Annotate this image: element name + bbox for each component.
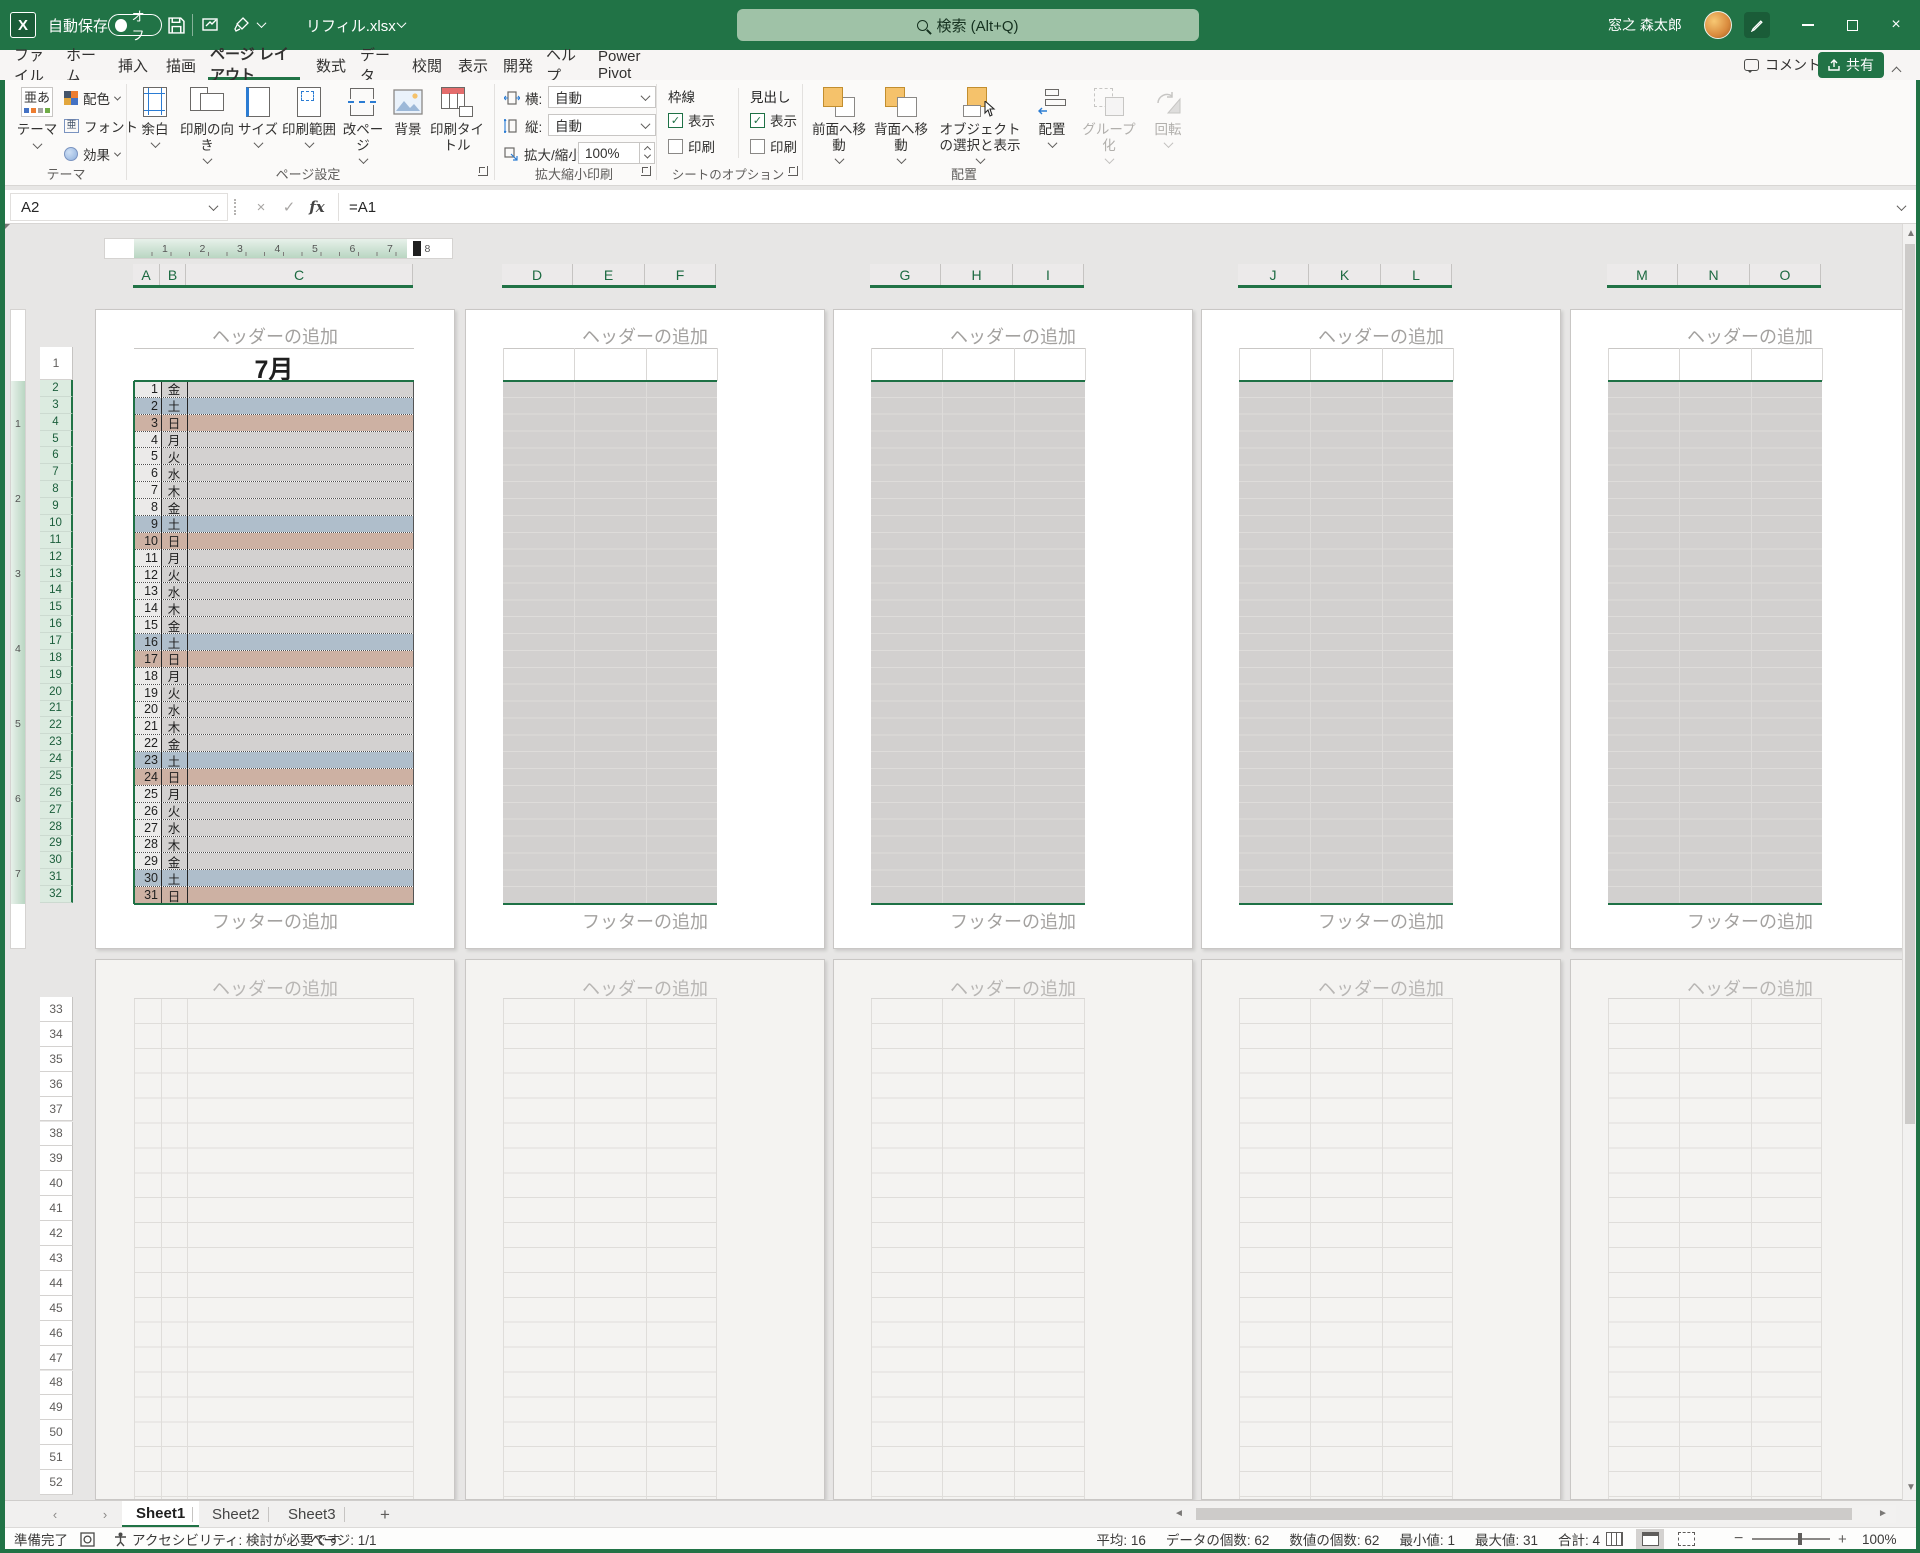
selection-border-bottom bbox=[871, 903, 1085, 905]
share-icon bbox=[1828, 59, 1840, 71]
accessibility-icon bbox=[114, 1528, 127, 1550]
day-content-cell[interactable] bbox=[187, 482, 414, 498]
enter-check-icon[interactable]: ✓ bbox=[276, 193, 302, 221]
header-placeholder[interactable]: ヘッダーの追加 bbox=[1202, 323, 1560, 349]
horizontal-scroll-thumb[interactable] bbox=[1196, 1508, 1852, 1520]
row-header-3[interactable]: 3 bbox=[40, 397, 73, 414]
day-content-cell[interactable] bbox=[187, 398, 414, 414]
day-number-cell: 15 bbox=[134, 617, 161, 633]
day-content-cell[interactable] bbox=[187, 634, 414, 650]
menu-tab-開発[interactable]: 開発 bbox=[500, 50, 536, 80]
day-content-cell[interactable] bbox=[187, 415, 414, 431]
file-name[interactable]: リフィル.xlsx bbox=[306, 0, 396, 50]
page-setup-group-label: ページ設定 bbox=[128, 164, 488, 183]
day-of-week-cell: 土 bbox=[161, 752, 187, 768]
scale-percent-input[interactable]: 100% bbox=[578, 142, 640, 164]
menu-tab-ホーム[interactable]: ホーム bbox=[64, 50, 104, 80]
row-header-28[interactable]: 28 bbox=[40, 819, 73, 836]
page-setup-breaks-button[interactable]: 改ページ bbox=[338, 84, 388, 164]
day-number-cell: 17 bbox=[134, 651, 161, 667]
day-number-cell: 12 bbox=[134, 567, 161, 583]
day-content-cell[interactable] bbox=[187, 567, 414, 583]
content-top-line bbox=[871, 348, 1085, 349]
dropdown-chevron-icon bbox=[358, 154, 368, 164]
dropdown-chevron-icon bbox=[1163, 138, 1173, 148]
day-content-cell[interactable] bbox=[187, 550, 414, 566]
day-of-week-cell: 火 bbox=[161, 685, 187, 701]
insert-function-icon[interactable]: fx bbox=[304, 193, 330, 221]
row-header-38[interactable]: 38 bbox=[40, 1122, 73, 1147]
header-placeholder[interactable]: ヘッダーの追加 bbox=[96, 323, 454, 349]
window-icon[interactable] bbox=[200, 14, 222, 36]
scroll-right-icon[interactable]: ► bbox=[1878, 1508, 1888, 1519]
fonts-icon: 亜 bbox=[64, 119, 79, 133]
row-header-50[interactable]: 50 bbox=[40, 1420, 73, 1445]
row-header-4[interactable]: 4 bbox=[40, 414, 73, 431]
row-header-6[interactable]: 6 bbox=[40, 447, 73, 464]
day-of-week-cell: 土 bbox=[161, 516, 187, 532]
page-setup-orientation-button[interactable]: 印刷の向き bbox=[180, 84, 234, 164]
day-content-cell[interactable] bbox=[187, 381, 414, 397]
theme-effects-button[interactable]: 効果 bbox=[64, 144, 120, 164]
ribbon-collapse-icon[interactable] bbox=[1893, 62, 1900, 78]
row-header-7[interactable]: 7 bbox=[40, 464, 73, 481]
row-header-2[interactable]: 2 bbox=[40, 380, 73, 397]
dropdown-chevron-icon bbox=[150, 138, 160, 148]
day-number-cell: 13 bbox=[134, 583, 161, 599]
day-content-cell[interactable] bbox=[187, 735, 414, 751]
gridline-vertical bbox=[187, 999, 188, 1500]
column-header-H[interactable]: H bbox=[941, 264, 1013, 286]
day-content-cell[interactable] bbox=[187, 853, 414, 869]
row-header-11[interactable]: 11 bbox=[40, 532, 73, 549]
column-header-O[interactable]: O bbox=[1750, 264, 1821, 286]
day-content-cell[interactable] bbox=[187, 448, 414, 464]
ready-status: 準備完了 bbox=[14, 1528, 68, 1550]
column-border-ab bbox=[161, 381, 162, 904]
stat-item: 数値の個数: 62 bbox=[1289, 1529, 1379, 1549]
page-break-view-icon[interactable] bbox=[1672, 1529, 1700, 1549]
pen-icon[interactable] bbox=[1744, 12, 1770, 38]
status-bar: 準備完了 アクセシビリティ: 検討が必要です ページ: 1/1 平均: 16デー… bbox=[0, 1527, 1920, 1549]
save-icon[interactable] bbox=[165, 14, 187, 36]
row-header-12[interactable]: 12 bbox=[40, 549, 73, 566]
maximize-button[interactable] bbox=[1832, 0, 1872, 50]
footer-placeholder[interactable]: フッターの追加 bbox=[96, 908, 454, 934]
page-setup-button-label: 余白 bbox=[132, 122, 178, 138]
day-content-cell[interactable] bbox=[187, 887, 414, 903]
user-name: 窓之 森太郎 bbox=[1608, 0, 1682, 50]
row-header-48[interactable]: 48 bbox=[40, 1371, 73, 1396]
row-header-22[interactable]: 22 bbox=[40, 717, 73, 734]
row-header-16[interactable]: 16 bbox=[40, 616, 73, 633]
horizontal-scrollbar[interactable]: ◄ ► bbox=[1170, 1505, 1896, 1523]
day-content-cell[interactable] bbox=[187, 820, 414, 836]
row-header-41[interactable]: 41 bbox=[40, 1196, 73, 1221]
vertical-scrollbar[interactable]: ▲▼ bbox=[1902, 224, 1916, 1500]
gridline-vertical bbox=[646, 381, 647, 904]
sheet-tab-separator bbox=[192, 1507, 193, 1522]
row-header-8[interactable]: 8 bbox=[40, 481, 73, 498]
column-border-bc bbox=[187, 381, 188, 904]
normal-view-icon[interactable] bbox=[1600, 1529, 1628, 1549]
page-setup-button-label: サイズ bbox=[236, 122, 280, 138]
menu-tab-ページ レイアウト[interactable]: ページ レイアウト bbox=[208, 50, 300, 80]
row-header-35[interactable]: 35 bbox=[40, 1047, 73, 1072]
day-content-cell[interactable] bbox=[187, 533, 414, 549]
scroll-down-icon[interactable]: ▼ bbox=[1906, 1482, 1916, 1493]
selection-stats: 平均: 16データの個数: 62数値の個数: 62最小値: 1最大値: 31合計… bbox=[1096, 1528, 1600, 1550]
themes-label: テーマ bbox=[17, 122, 58, 138]
brush-icon[interactable] bbox=[230, 14, 252, 36]
header-placeholder[interactable]: ヘッダーの追加 bbox=[466, 323, 824, 349]
qat-customize-chevron-icon[interactable] bbox=[258, 21, 265, 28]
day-content-cell[interactable] bbox=[187, 685, 414, 701]
sheet-nav-left-icon[interactable]: ‹ bbox=[42, 1501, 68, 1528]
column-header-J[interactable]: J bbox=[1238, 264, 1309, 286]
row-header-34[interactable]: 34 bbox=[40, 1022, 73, 1047]
row-header-20[interactable]: 20 bbox=[40, 684, 73, 701]
day-content-cell[interactable] bbox=[187, 432, 414, 448]
column-header-M[interactable]: M bbox=[1607, 264, 1678, 286]
page-setup-print-area-button[interactable]: 印刷範囲 bbox=[282, 84, 336, 148]
day-content-cell[interactable] bbox=[187, 668, 414, 684]
stat-item: データの個数: 62 bbox=[1166, 1529, 1270, 1549]
row-header-17[interactable]: 17 bbox=[40, 633, 73, 650]
row-header-1[interactable]: 1 bbox=[40, 347, 73, 380]
gridlines-print-checkbox[interactable]: 印刷 bbox=[668, 136, 715, 156]
selection-border-bottom bbox=[503, 903, 717, 905]
column-border-right bbox=[413, 381, 414, 904]
day-content-cell[interactable] bbox=[187, 600, 414, 616]
row-header-45[interactable]: 45 bbox=[40, 1296, 73, 1321]
print-area-icon bbox=[297, 84, 321, 120]
sheet-tab-Sheet3[interactable]: Sheet3 bbox=[274, 1501, 350, 1528]
cancel-icon[interactable]: × bbox=[248, 193, 274, 221]
formula-bar: A2 × ✓ fx =A1 bbox=[0, 190, 1920, 224]
row-header-26[interactable]: 26 bbox=[40, 785, 73, 802]
autosave-toggle[interactable]: オフ bbox=[108, 14, 162, 36]
row-header-14[interactable]: 14 bbox=[40, 582, 73, 599]
calendar-row-31[interactable]: 31日 bbox=[134, 887, 414, 904]
footer-placeholder[interactable]: フッターの追加 bbox=[466, 908, 824, 934]
day-content-cell[interactable] bbox=[187, 769, 414, 785]
page-setup-background-button[interactable]: 背景 bbox=[390, 84, 426, 138]
day-content-cell[interactable] bbox=[187, 803, 414, 819]
share-button[interactable]: 共有 bbox=[1818, 52, 1884, 78]
scale-width-row: 横: bbox=[504, 88, 542, 108]
effects-icon bbox=[64, 147, 78, 161]
print-titles-icon bbox=[441, 84, 473, 120]
row-header-25[interactable]: 25 bbox=[40, 768, 73, 785]
dropdown-chevron-icon bbox=[975, 154, 985, 164]
footer-placeholder[interactable]: フッターの追加 bbox=[1571, 908, 1920, 934]
column-header-D[interactable]: D bbox=[502, 264, 573, 286]
page-layout-view-icon[interactable] bbox=[1636, 1529, 1664, 1549]
day-number-cell: 30 bbox=[134, 870, 161, 886]
selection-pane-icon bbox=[963, 84, 997, 120]
row-header-36[interactable]: 36 bbox=[40, 1072, 73, 1097]
column-header-N[interactable]: N bbox=[1678, 264, 1750, 286]
day-content-cell[interactable] bbox=[187, 583, 414, 599]
gridline-vertical bbox=[942, 999, 943, 1500]
day-of-week-cell: 金 bbox=[161, 499, 187, 515]
search-placeholder: 検索 (Alt+Q) bbox=[936, 15, 1018, 36]
align-button[interactable]: 配置 bbox=[1030, 84, 1074, 148]
day-number-cell: 29 bbox=[134, 853, 161, 869]
vruler-number: 6 bbox=[15, 793, 21, 805]
row-header-39[interactable]: 39 bbox=[40, 1146, 73, 1171]
bring-forward-button[interactable]: 前面へ移動 bbox=[810, 84, 868, 164]
scroll-left-icon[interactable]: ◄ bbox=[1174, 1508, 1184, 1519]
day-of-week-cell: 日 bbox=[161, 887, 187, 903]
gridline-vertical bbox=[1821, 999, 1822, 1500]
send-backward-icon bbox=[885, 84, 917, 120]
day-number-cell: 5 bbox=[134, 448, 161, 464]
day-content-cell[interactable] bbox=[187, 786, 414, 802]
group-icon bbox=[1094, 84, 1124, 120]
scroll-up-icon[interactable]: ▲ bbox=[1906, 228, 1916, 239]
page-5: ヘッダーの追加フッターの追加 bbox=[1570, 309, 1920, 949]
menu-tab-ヘルプ[interactable]: ヘルプ bbox=[544, 50, 584, 80]
excel-window: X 自動保存 オフ リフィル.xlsx 検索 (Alt+Q) 窓之 森太郎 × bbox=[0, 0, 1920, 1553]
add-sheet-button[interactable]: + bbox=[372, 1501, 398, 1528]
send-backward-button[interactable]: 背面へ移動 bbox=[872, 84, 930, 164]
column-header-G[interactable]: G bbox=[870, 264, 941, 286]
row-header-37[interactable]: 37 bbox=[40, 1097, 73, 1122]
avatar[interactable] bbox=[1704, 11, 1732, 39]
vruler-number: 4 bbox=[15, 643, 21, 655]
day-content-cell[interactable] bbox=[187, 617, 414, 633]
scale-height-select[interactable]: 自動 bbox=[548, 114, 656, 136]
column-header-B[interactable]: B bbox=[160, 264, 186, 286]
day-of-week-cell: 土 bbox=[161, 870, 187, 886]
page-setup-size-button[interactable]: サイズ bbox=[236, 84, 280, 148]
row-header-15[interactable]: 15 bbox=[40, 599, 73, 616]
selection-border-left bbox=[133, 381, 135, 904]
dropdown-chevron-icon bbox=[202, 154, 212, 164]
page-setup-print-titles-button[interactable]: 印刷タイトル bbox=[428, 84, 486, 154]
scale-icon bbox=[504, 147, 519, 161]
column-header-A[interactable]: A bbox=[133, 264, 160, 286]
menu-tab-ファイル[interactable]: ファイル bbox=[12, 50, 56, 80]
gridline-vertical bbox=[1310, 999, 1311, 1500]
row-header-23[interactable]: 23 bbox=[40, 734, 73, 751]
row-header-47[interactable]: 47 bbox=[40, 1346, 73, 1371]
dropdown-chevron-icon bbox=[253, 138, 263, 148]
zoom-slider-thumb[interactable] bbox=[1798, 1533, 1802, 1545]
day-content-cell[interactable] bbox=[187, 752, 414, 768]
day-of-week-cell: 木 bbox=[161, 837, 187, 853]
footer-placeholder[interactable]: フッターの追加 bbox=[1202, 908, 1560, 934]
row-header-40[interactable]: 40 bbox=[40, 1171, 73, 1196]
row-header-10[interactable]: 10 bbox=[40, 515, 73, 532]
empty-grid bbox=[871, 998, 1085, 1500]
vruler-number: 1 bbox=[15, 418, 21, 430]
formula-bar-expand-icon[interactable] bbox=[1888, 193, 1914, 221]
day-of-week-cell: 水 bbox=[161, 583, 187, 599]
row-header-29[interactable]: 29 bbox=[40, 836, 73, 853]
day-content-cell[interactable] bbox=[187, 870, 414, 886]
day-of-week-cell: 金 bbox=[161, 735, 187, 751]
window-frame-left bbox=[0, 80, 5, 1553]
day-of-week-cell: 月 bbox=[161, 550, 187, 566]
zoom-in-icon[interactable]: + bbox=[1838, 1528, 1847, 1550]
row-header-5[interactable]: 5 bbox=[40, 431, 73, 448]
horizontal-ruler[interactable]: 12345678 bbox=[104, 238, 453, 259]
formula-input[interactable]: =A1 bbox=[338, 193, 1888, 221]
row-header-9[interactable]: 9 bbox=[40, 498, 73, 515]
headings-print-checkbox[interactable]: 印刷 bbox=[750, 136, 797, 156]
day-content-cell[interactable] bbox=[187, 516, 414, 532]
menu-tab-表示[interactable]: 表示 bbox=[454, 50, 492, 80]
dropdown-chevron-icon bbox=[1104, 154, 1114, 164]
column-header-F[interactable]: F bbox=[645, 264, 716, 286]
scale-height-row: 縦: bbox=[504, 116, 542, 136]
selection-border-top bbox=[134, 380, 414, 382]
arrange-button-label: グループ化 bbox=[1078, 122, 1140, 154]
menu-tab-校閲[interactable]: 校閲 bbox=[408, 50, 446, 80]
filename-chevron-icon[interactable] bbox=[398, 21, 405, 28]
vertical-scroll-thumb[interactable] bbox=[1905, 244, 1915, 1124]
column-header-L[interactable]: L bbox=[1381, 264, 1452, 286]
row-header-51[interactable]: 51 bbox=[40, 1445, 73, 1470]
sheet-nav-right-icon[interactable]: › bbox=[92, 1501, 118, 1528]
row-header-24[interactable]: 24 bbox=[40, 751, 73, 768]
vertical-ruler[interactable]: 1234567 bbox=[10, 309, 26, 949]
row-header-32[interactable]: 32 bbox=[40, 886, 73, 903]
column-header-I[interactable]: I bbox=[1013, 264, 1084, 286]
header-placeholder[interactable]: ヘッダーの追加 bbox=[834, 323, 1192, 349]
comment-bubble-icon bbox=[1744, 59, 1759, 71]
arrange-group-label: 配置 bbox=[804, 164, 1124, 183]
sheet-tab-bar: ‹ › Sheet1Sheet2Sheet3 + ◄ ► bbox=[0, 1500, 1920, 1527]
qat-separator bbox=[192, 14, 193, 36]
row-header-44[interactable]: 44 bbox=[40, 1271, 73, 1296]
gridline-vertical bbox=[1679, 381, 1680, 904]
gridline-vertical bbox=[161, 999, 162, 1500]
zoom-out-icon[interactable]: − bbox=[1734, 1528, 1743, 1550]
column-header-C[interactable]: C bbox=[186, 264, 413, 286]
gridline-vertical bbox=[1310, 348, 1311, 381]
row-header-46[interactable]: 46 bbox=[40, 1321, 73, 1346]
page-setup-dialog-launcher-icon[interactable] bbox=[478, 166, 488, 176]
day-number-cell: 20 bbox=[134, 702, 161, 718]
comments-button[interactable]: コメント bbox=[1736, 52, 1829, 78]
row-header-31[interactable]: 31 bbox=[40, 869, 73, 886]
align-icon bbox=[1037, 84, 1067, 120]
gridline-vertical bbox=[1239, 348, 1240, 381]
scale-width-select[interactable]: 自動 bbox=[548, 86, 656, 108]
minimize-button[interactable] bbox=[1788, 0, 1828, 50]
row-header-30[interactable]: 30 bbox=[40, 852, 73, 869]
row-header-18[interactable]: 18 bbox=[40, 650, 73, 667]
close-button[interactable]: × bbox=[1876, 0, 1916, 50]
zoom-level[interactable]: 100% bbox=[1862, 1528, 1897, 1550]
arrange-button-label: オブジェクトの選択と表示 bbox=[934, 122, 1026, 154]
column-header-K[interactable]: K bbox=[1309, 264, 1381, 286]
column-header-underline bbox=[1607, 285, 1821, 288]
row-header-43[interactable]: 43 bbox=[40, 1246, 73, 1271]
menu-tab-数式[interactable]: 数式 bbox=[312, 50, 350, 80]
row-header-13[interactable]: 13 bbox=[40, 566, 73, 583]
row-header-21[interactable]: 21 bbox=[40, 701, 73, 718]
header-placeholder[interactable]: ヘッダーの追加 bbox=[1571, 323, 1920, 349]
column-header-E[interactable]: E bbox=[573, 264, 645, 286]
day-content-cell[interactable] bbox=[187, 837, 414, 853]
gridlines-view-checkbox[interactable]: ✓表示 bbox=[668, 110, 715, 130]
menu-tab-挿入[interactable]: 挿入 bbox=[114, 50, 152, 80]
zoom-slider[interactable] bbox=[1752, 1538, 1830, 1540]
gridline-vertical bbox=[1014, 999, 1015, 1500]
page-setup-margins-button[interactable]: 余白 bbox=[132, 84, 178, 148]
menu-tab-描画[interactable]: 描画 bbox=[162, 50, 200, 80]
sheet-tab-Sheet1[interactable]: Sheet1 bbox=[122, 1501, 199, 1528]
search-input[interactable]: 検索 (Alt+Q) bbox=[737, 9, 1199, 41]
day-content-cell[interactable] bbox=[187, 499, 414, 515]
page-7: ヘッダーの追加 bbox=[465, 959, 825, 1500]
content-top-line bbox=[1608, 348, 1822, 349]
day-of-week-cell: 火 bbox=[161, 448, 187, 464]
excel-app-icon[interactable]: X bbox=[10, 12, 36, 38]
page-6: ヘッダーの追加 bbox=[95, 959, 455, 1500]
row-header-27[interactable]: 27 bbox=[40, 802, 73, 819]
ruler-ticks bbox=[134, 252, 407, 256]
sheet-options-dialog-launcher-icon[interactable] bbox=[788, 166, 798, 176]
height-icon bbox=[504, 119, 520, 133]
row-header-42[interactable]: 42 bbox=[40, 1221, 73, 1246]
gridline-vertical bbox=[1382, 381, 1383, 904]
menu-tab-Power Pivot[interactable]: Power Pivot bbox=[596, 50, 678, 80]
headings-view-checkbox[interactable]: ✓表示 bbox=[750, 110, 797, 130]
day-number-cell: 6 bbox=[134, 465, 161, 481]
gridline-vertical bbox=[1679, 348, 1680, 381]
row-header-33[interactable]: 33 bbox=[40, 997, 73, 1022]
day-of-week-cell: 金 bbox=[161, 381, 187, 397]
day-content-cell[interactable] bbox=[187, 718, 414, 734]
gridline-vertical bbox=[503, 999, 504, 1500]
day-number-cell: 3 bbox=[134, 415, 161, 431]
name-box[interactable]: A2 bbox=[10, 193, 228, 221]
macro-record-icon[interactable] bbox=[80, 1528, 95, 1550]
row-header-19[interactable]: 19 bbox=[40, 667, 73, 684]
sheet-tab-Sheet2[interactable]: Sheet2 bbox=[198, 1501, 274, 1528]
scale-spinner[interactable] bbox=[640, 142, 655, 164]
gridline-vertical bbox=[942, 381, 943, 904]
filled-range bbox=[1608, 381, 1822, 904]
day-of-week-cell: 日 bbox=[161, 415, 187, 431]
ruler-number: 8 bbox=[425, 243, 431, 255]
empty-grid bbox=[503, 998, 717, 1500]
day-of-week-cell: 火 bbox=[161, 567, 187, 583]
day-content-cell[interactable] bbox=[187, 651, 414, 667]
gridline-vertical bbox=[1014, 348, 1015, 381]
row-header-49[interactable]: 49 bbox=[40, 1395, 73, 1420]
menu-tab-データ[interactable]: データ bbox=[358, 50, 398, 80]
day-content-cell[interactable] bbox=[187, 465, 414, 481]
footer-placeholder[interactable]: フッターの追加 bbox=[834, 908, 1192, 934]
theme-colors-button[interactable]: 配色 bbox=[64, 88, 120, 108]
day-number-cell: 21 bbox=[134, 718, 161, 734]
page-setup-button-label: 印刷の向き bbox=[180, 122, 234, 154]
arrange-button-label: 配置 bbox=[1030, 122, 1074, 138]
row-header-52[interactable]: 52 bbox=[40, 1470, 73, 1495]
themes-button[interactable]: 亜あ テーマ bbox=[14, 84, 60, 149]
stat-item: 最大値: 31 bbox=[1475, 1529, 1538, 1549]
scale-dialog-launcher-icon[interactable] bbox=[641, 166, 651, 176]
day-content-cell[interactable] bbox=[187, 702, 414, 718]
selection-pane-button[interactable]: オブジェクトの選択と表示 bbox=[934, 84, 1026, 164]
